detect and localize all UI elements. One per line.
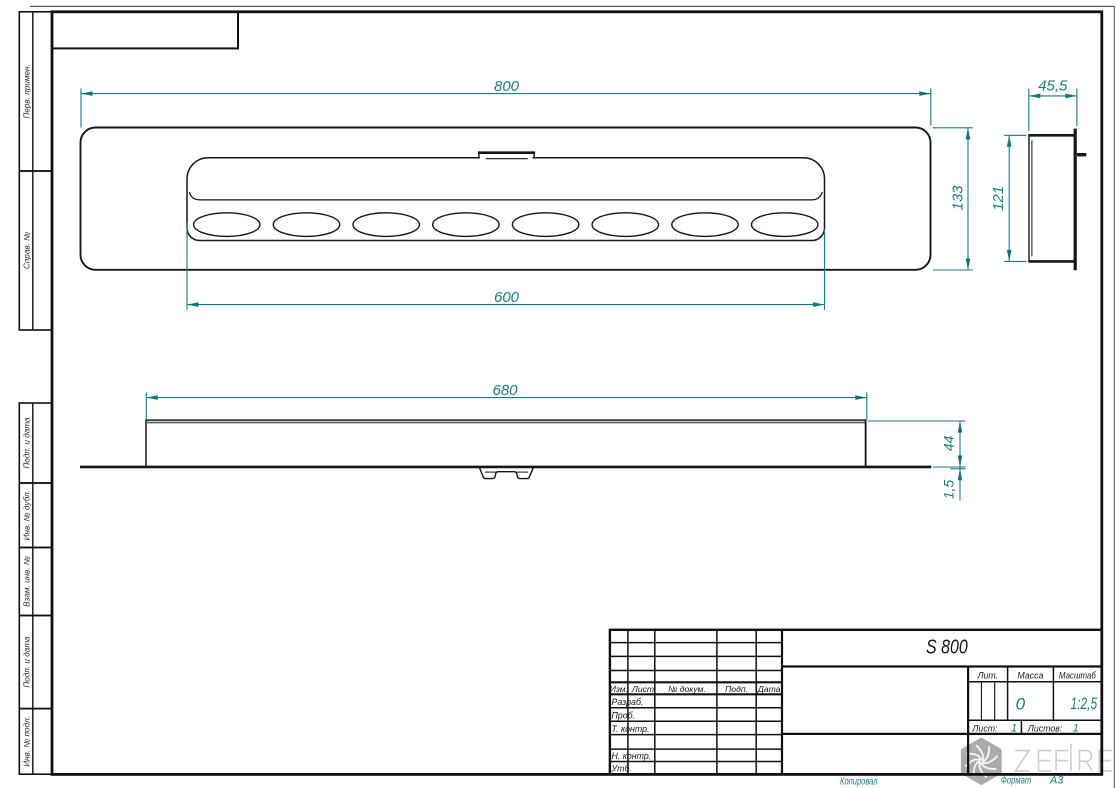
svg-text:600: 600 [494,289,520,306]
svg-text:А3: А3 [1049,775,1064,787]
svg-text:1: 1 [1011,722,1017,734]
svg-text:Перв. примен.: Перв. примен. [23,64,32,118]
svg-text:S 800: S 800 [926,636,968,658]
svg-text:Инв. № подл.: Инв. № подл. [23,716,32,767]
svg-text:Дата: Дата [757,684,781,694]
svg-text:Изм.: Изм. [610,684,628,694]
svg-text:1:2,5: 1:2,5 [1071,694,1098,713]
svg-text:133: 133 [949,185,966,211]
svg-text:Лит.: Лит. [976,671,998,681]
svg-text:Масштаб: Масштаб [1059,671,1097,681]
svg-text:Лист: Лист [631,684,654,694]
svg-text:Н. контр.: Н. контр. [612,751,652,761]
svg-text:45,5: 45,5 [1038,78,1068,95]
svg-text:1: 1 [1073,722,1079,734]
svg-text:800: 800 [494,78,520,95]
svg-text:Копировал: Копировал [840,776,878,788]
svg-text:Листов:: Листов: [1027,723,1063,733]
svg-text:Утб.: Утб. [611,764,632,774]
svg-text:№ докум.: № докум. [668,684,706,694]
svg-text:1,5: 1,5 [941,480,957,500]
svg-text:Взам. инв. №: Взам. инв. № [23,556,32,607]
svg-text:Лист:: Лист: [971,723,998,733]
svg-text:Инв. № дубл.: Инв. № дубл. [23,490,32,540]
svg-text:680: 680 [492,382,518,399]
svg-text:Проб.: Проб. [612,710,636,720]
svg-text:Т. контр.: Т. контр. [612,724,650,734]
svg-text:Подп. и дата: Подп. и дата [23,636,32,688]
svg-text:Подп.: Подп. [725,684,748,694]
svg-text:Разраб.: Разраб. [612,697,644,707]
svg-text:Справ. №: Справ. № [23,232,32,269]
svg-text:Масса: Масса [1017,671,1043,681]
svg-text:Формат: Формат [1001,774,1032,786]
svg-text:Подп. и дата: Подп. и дата [23,417,32,469]
svg-text:44: 44 [940,436,956,452]
svg-text:0: 0 [1016,694,1026,713]
svg-text:121: 121 [990,186,1007,211]
